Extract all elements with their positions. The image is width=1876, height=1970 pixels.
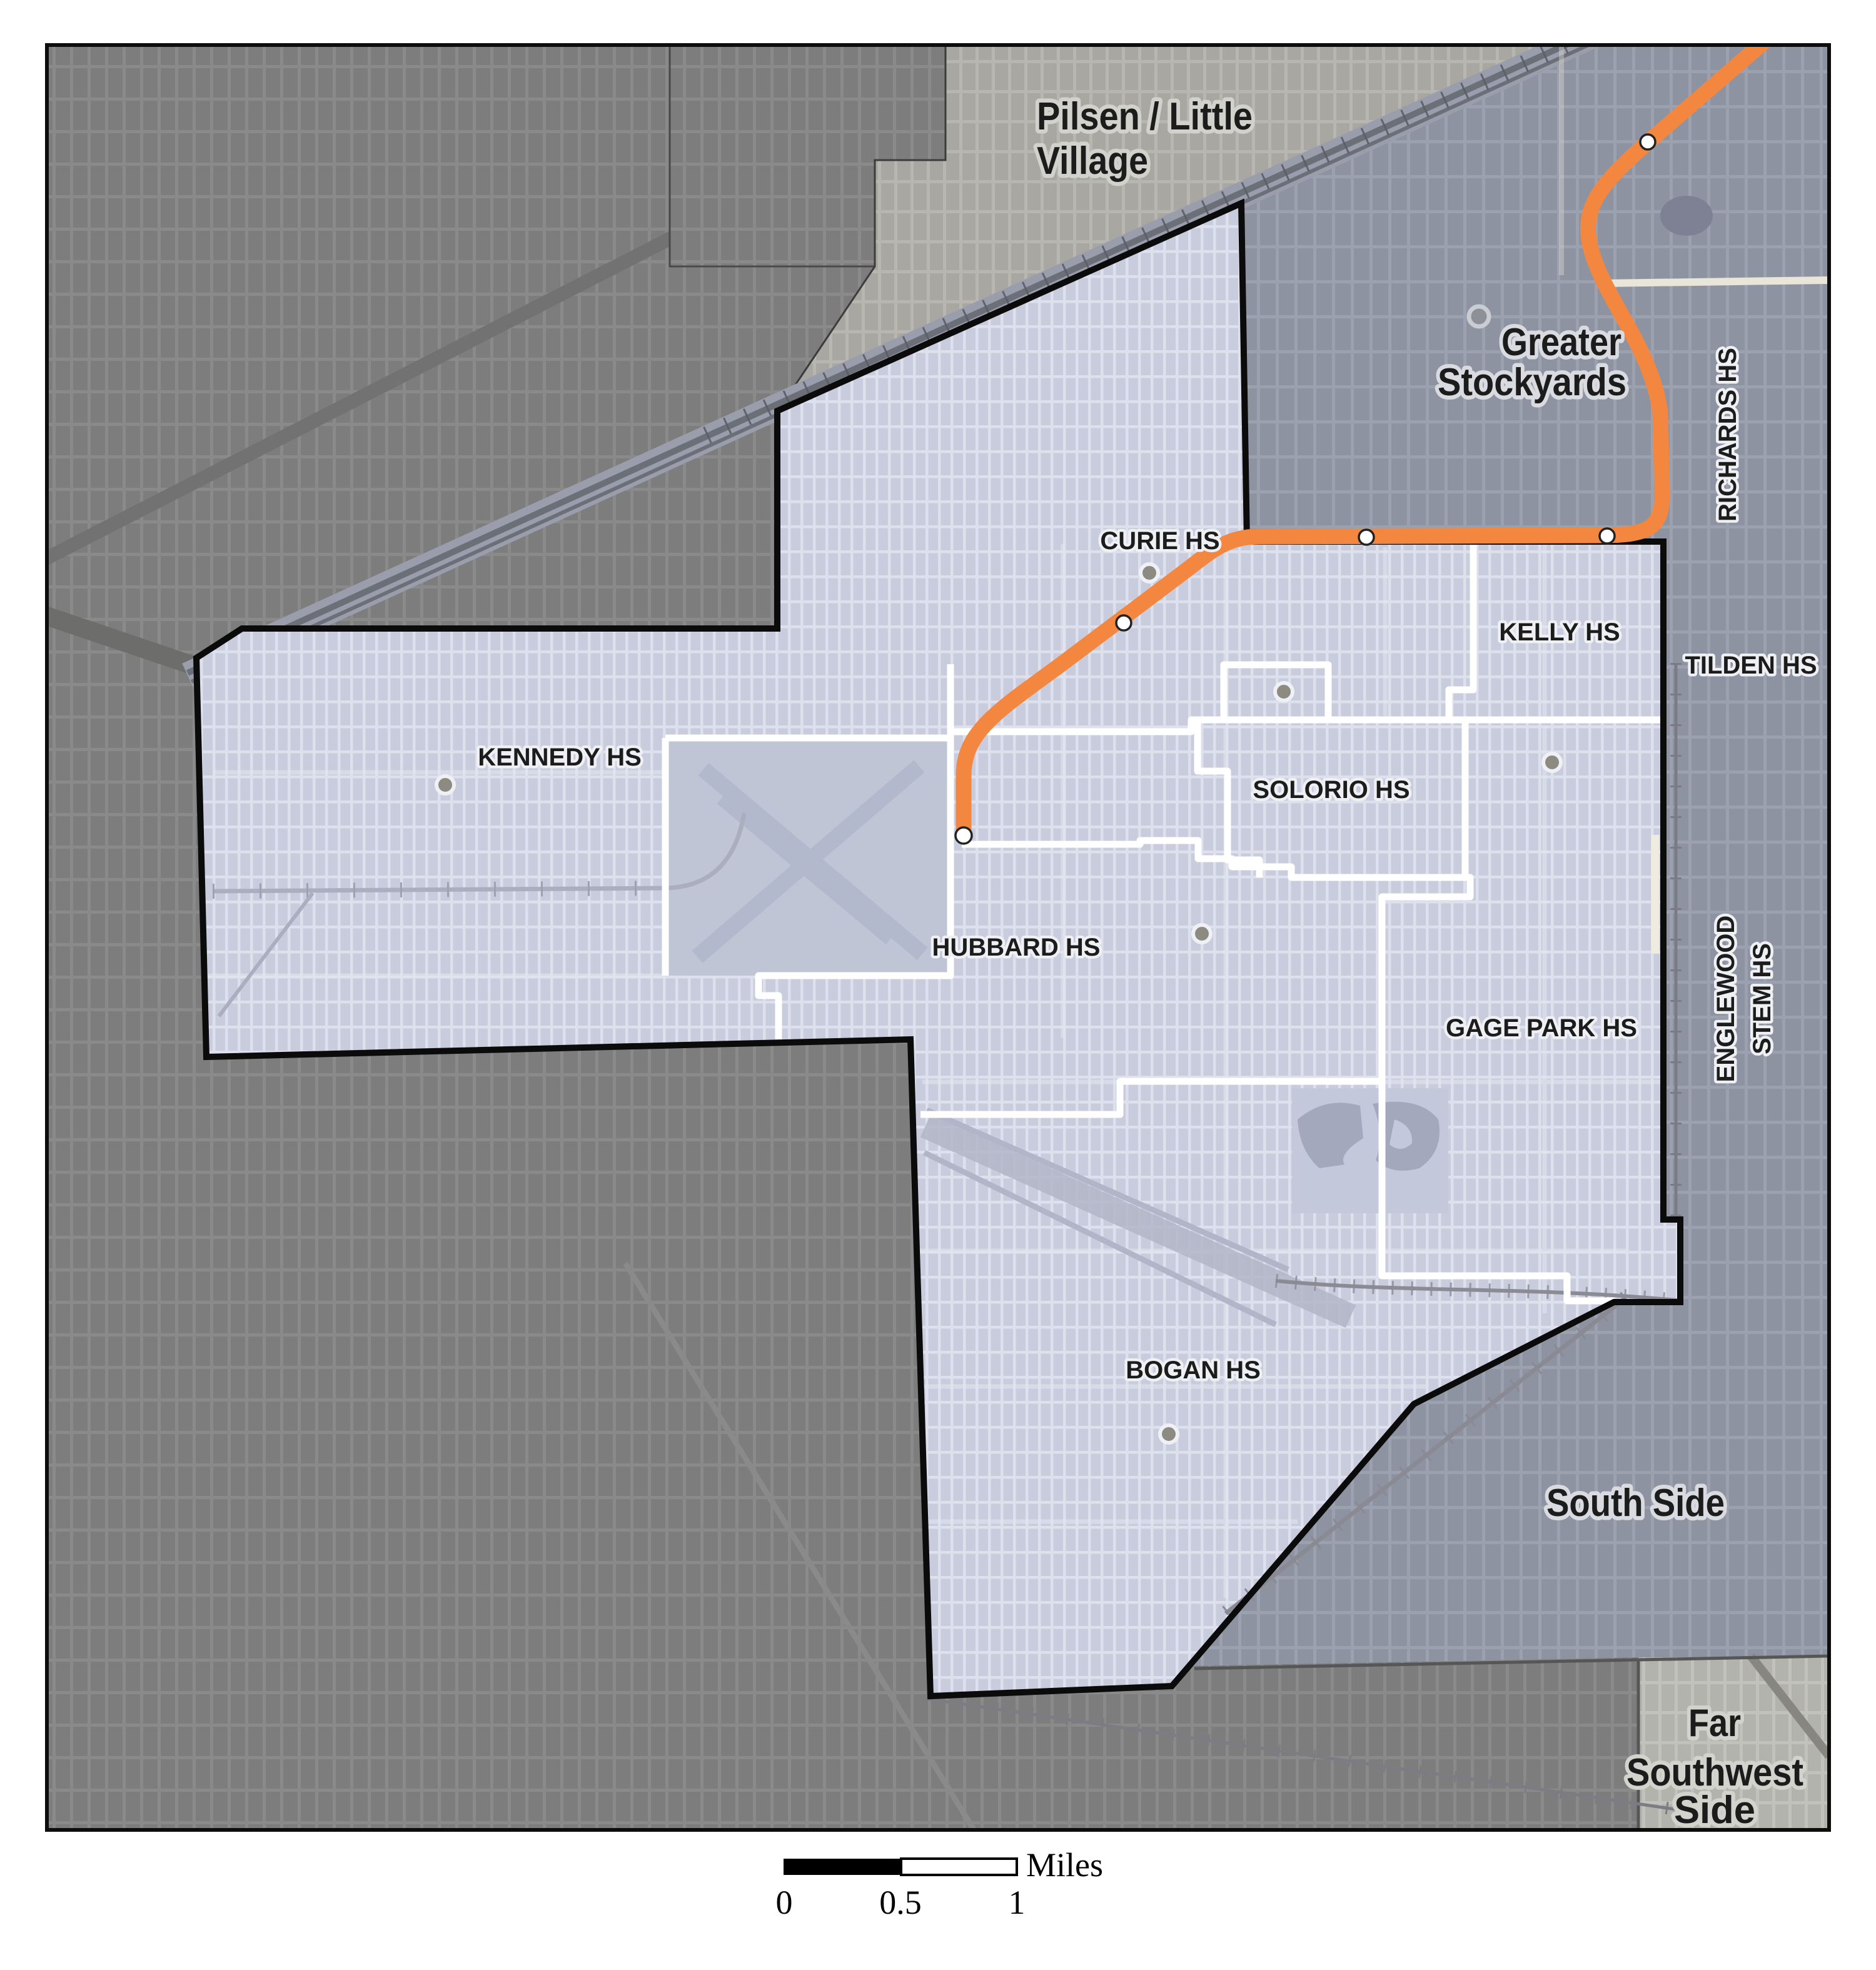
svg-text:Side: Side <box>1674 1789 1755 1832</box>
svg-text:South Side: South Side <box>1546 1482 1725 1525</box>
svg-text:KENNEDY HS: KENNEDY HS <box>478 744 642 771</box>
svg-text:1: 1 <box>1009 1884 1026 1921</box>
svg-text:BOGAN HS: BOGAN HS <box>1126 1356 1261 1384</box>
svg-text:0.5: 0.5 <box>879 1884 922 1921</box>
svg-text:Pilsen / Little: Pilsen / Little <box>1037 95 1253 138</box>
svg-text:Far: Far <box>1688 1702 1741 1745</box>
svg-text:Miles: Miles <box>1026 1846 1103 1884</box>
svg-text:SOLORIO HS: SOLORIO HS <box>1253 776 1410 804</box>
svg-text:GAGE PARK HS: GAGE PARK HS <box>1446 1014 1637 1042</box>
svg-text:Greater: Greater <box>1501 321 1621 364</box>
svg-text:Southwest: Southwest <box>1626 1751 1803 1794</box>
svg-text:Stockyards: Stockyards <box>1438 361 1626 404</box>
svg-text:KELLY HS: KELLY HS <box>1499 619 1620 646</box>
svg-text:TILDEN HS: TILDEN HS <box>1685 652 1817 679</box>
svg-text:STEM HS: STEM HS <box>1748 943 1776 1054</box>
svg-text:HUBBARD HS: HUBBARD HS <box>932 934 1101 961</box>
svg-text:RICHARDS HS: RICHARDS HS <box>1714 348 1742 522</box>
svg-text:0: 0 <box>776 1884 793 1921</box>
svg-text:CURIE HS: CURIE HS <box>1100 527 1219 555</box>
svg-text:Village: Village <box>1037 139 1148 183</box>
svg-text:ENGLEWOOD: ENGLEWOOD <box>1712 916 1740 1083</box>
